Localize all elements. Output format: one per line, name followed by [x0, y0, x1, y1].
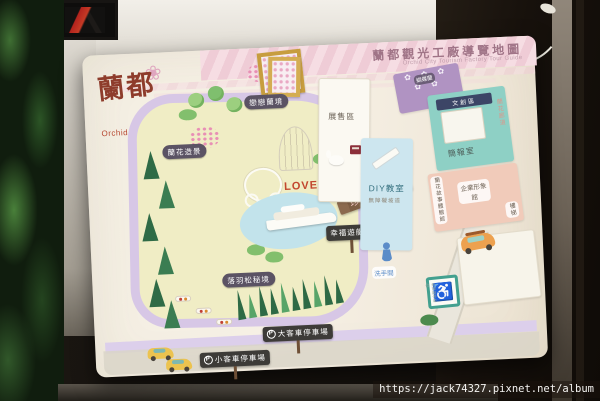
- framed-artwork: [56, 0, 118, 40]
- photo-of-map-signboard: 蘭都觀光工廠導覽地圖 Orchid City Tourism Factory T…: [0, 0, 600, 401]
- orange-car-icon: [460, 231, 496, 252]
- gate-frame-inner: [268, 57, 300, 97]
- photo-watermark: https://jack74327.pixnet.net/album: [373, 381, 600, 398]
- ramp-icon: [371, 147, 400, 171]
- conifer-tree-icon: [158, 180, 175, 209]
- picnic-table-icon: [196, 307, 212, 314]
- love-installation-text: LOVE: [284, 179, 318, 193]
- accessible-parking-sign: ♿ 無障礙停車位: [426, 274, 461, 309]
- orchid-story-hall-label: 蘭花故事體驗館: [430, 176, 448, 225]
- conifer-tree-icon: [163, 300, 180, 329]
- cultural-zone-bar: 文創區: [436, 92, 493, 110]
- picnic-table-icon: [216, 318, 232, 325]
- corporate-image-hall-label: 企業形象館: [457, 178, 492, 204]
- parking-icon: P: [267, 329, 276, 338]
- diy-classroom-building: DIY教室 無障礙坡道: [360, 138, 413, 250]
- background-edge: [576, 0, 584, 401]
- story-hall-building: 蘭花故事體驗館 企業形象館 樓梯: [427, 163, 524, 232]
- cypress-icon: [267, 288, 279, 315]
- orchid-scenery-badge: 蘭花造景: [162, 143, 207, 159]
- car-parking-signpost: P小客車停車場: [199, 345, 270, 368]
- sign-post: [297, 340, 301, 353]
- picnic-table-icon: [175, 295, 191, 302]
- cypress-icon: [245, 293, 257, 318]
- cypress-icon: [289, 286, 301, 311]
- sign-post: [234, 366, 238, 379]
- display-area-label: 展售區: [328, 111, 355, 122]
- cypress-icon: [310, 280, 322, 307]
- parking-icon: P: [204, 355, 213, 364]
- bus-parking-signpost: P大客車停車場: [262, 319, 333, 342]
- sign-post: [350, 240, 354, 253]
- artwork-painting: [65, 7, 105, 33]
- cypress-trail-badge: 落羽松秘境: [222, 271, 275, 287]
- car-parking-label: 小客車停車場: [215, 351, 266, 364]
- orchid-city-map-board: 蘭都觀光工廠導覽地圖 Orchid City Tourism Factory T…: [82, 35, 548, 377]
- yellow-car-icon: [147, 347, 173, 359]
- conifer-tree-icon: [157, 246, 174, 275]
- car-parking-sign: P小客車停車場: [200, 349, 271, 367]
- conifer-tree-icon: [141, 213, 158, 242]
- restroom-label: 洗手間: [372, 266, 396, 279]
- gate-area-badge: 戀戀蘭境: [244, 94, 289, 110]
- diy-classroom-label: DIY教室: [369, 182, 405, 194]
- briefing-room-block: [440, 107, 486, 144]
- wall-reflection-strip: [552, 0, 572, 401]
- bus-parking-sign: P大客車停車場: [262, 323, 333, 341]
- logo-chinese: 蘭都: [96, 71, 157, 104]
- stairs-label: 樓梯: [505, 201, 520, 219]
- yellow-car-icon: [166, 358, 192, 370]
- orchid-corridor-label: 蘭花廊道: [494, 98, 507, 127]
- accessible-parking-label: 無障礙停車位: [424, 282, 438, 306]
- briefing-building: 文創區 簡報室 蘭花廊道: [427, 86, 514, 172]
- plant-foliage: [0, 0, 64, 401]
- bus-parking-label: 大客車停車場: [278, 326, 329, 339]
- restroom-person-icon: [379, 242, 394, 263]
- conifer-tree-icon: [142, 151, 159, 180]
- briefing-room-label: 簡報室: [447, 145, 475, 159]
- ramp-note-label: 無障礙坡道: [369, 196, 402, 204]
- swan-icon: [329, 155, 344, 165]
- cypress-icon: [332, 279, 344, 304]
- red-flag-icon: [350, 145, 361, 154]
